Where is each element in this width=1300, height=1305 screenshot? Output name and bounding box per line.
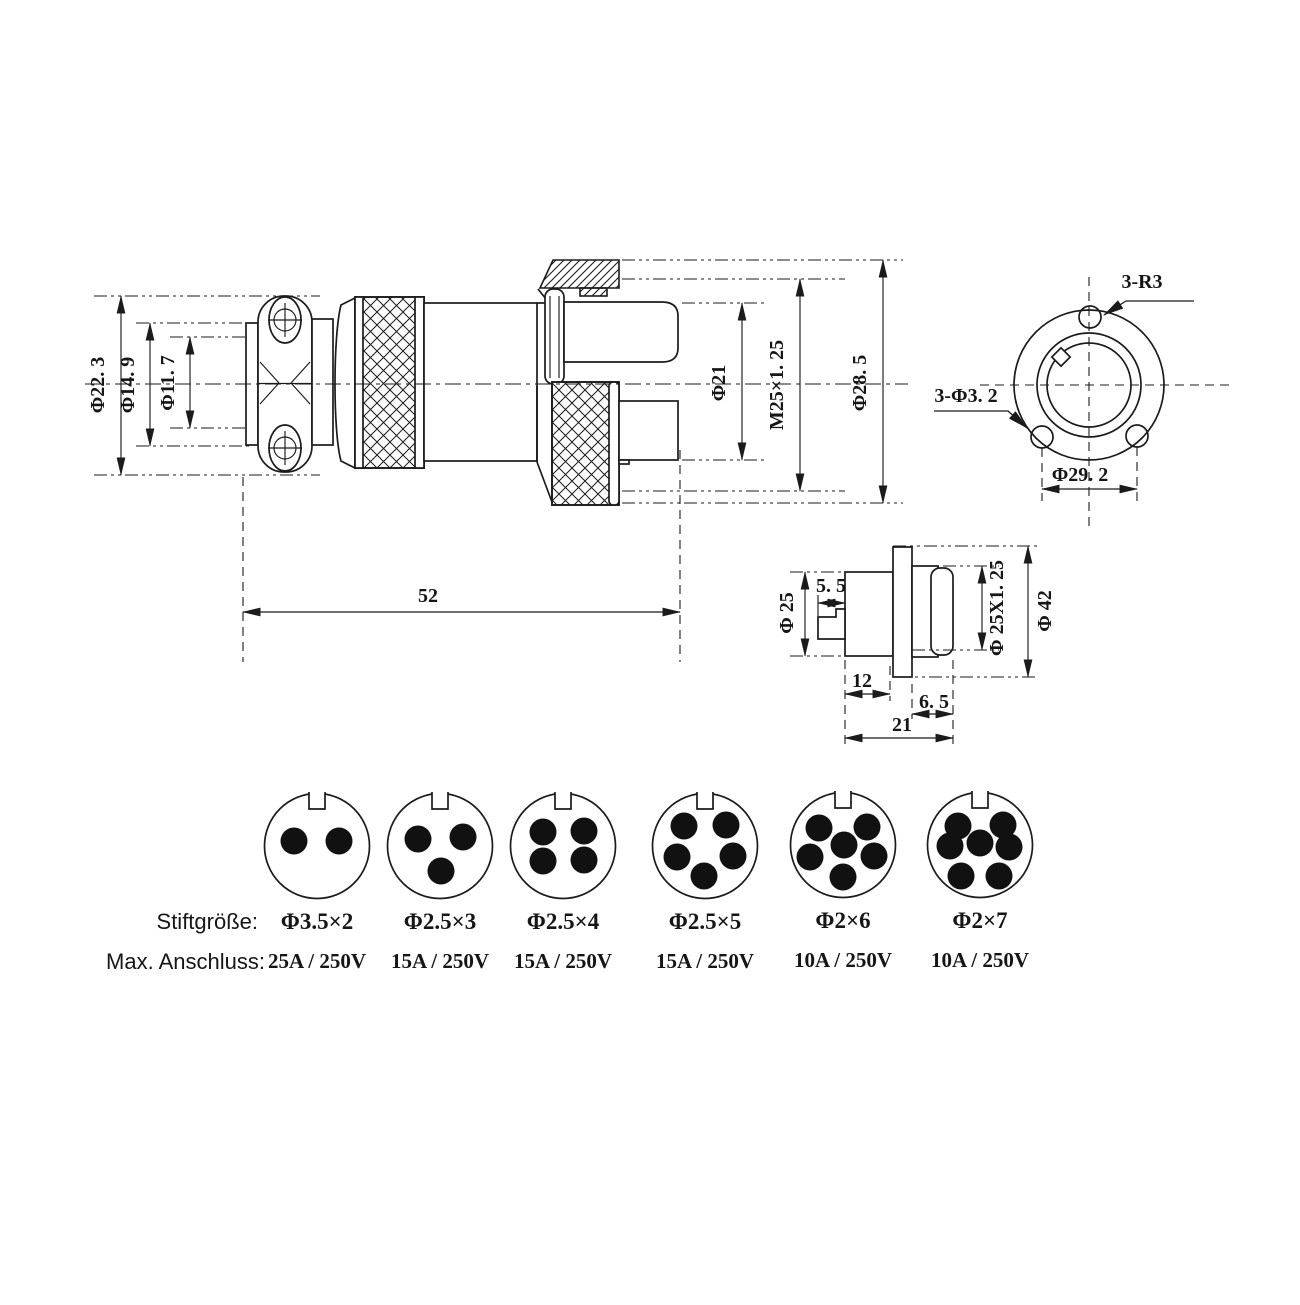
socket-front-cylinder xyxy=(845,572,893,656)
dim-nut-diameter: Φ28. 5 xyxy=(849,355,871,412)
dim-inner-diameter: Φ11. 7 xyxy=(157,355,179,410)
technical-drawing-canvas: Φ22. 3 Φ14. 9 Φ11. 7 Φ21 M25×1. 25 Φ28. … xyxy=(0,0,1300,1300)
pin-size-label: Φ2.5×3 xyxy=(404,909,476,934)
row-label-max-rating: Max. Anschluss: xyxy=(106,949,265,974)
pin-size-label: Φ3.5×2 xyxy=(281,909,353,934)
dim-total-length: 21 xyxy=(892,714,912,736)
dim-outer-diameter: Φ22. 3 xyxy=(87,357,109,414)
dim-mid-diameter: Φ14. 9 xyxy=(117,357,139,414)
pin-size-label: Φ2.5×5 xyxy=(669,909,741,934)
plug-body xyxy=(424,303,537,461)
dim-front-length: 12 xyxy=(852,670,872,692)
pin-view-2pin: Φ3.5×2 25A / 250V xyxy=(265,792,370,973)
label-r3-notches: 3-R3 xyxy=(1121,271,1162,293)
pin-size-label: Φ2×7 xyxy=(952,908,1007,933)
dim-rear-length: 6. 5 xyxy=(919,691,949,713)
connector-datasheet: Φ22. 3 Φ14. 9 Φ11. 7 Φ21 M25×1. 25 Φ28. … xyxy=(0,0,1300,1300)
keyway-notch xyxy=(1052,348,1070,366)
label-mounting-holes: 3-Φ3. 2 xyxy=(934,385,997,407)
panel-section-hatch xyxy=(540,260,619,288)
dim-body-diameter: Φ21 xyxy=(708,365,730,402)
rating-label: 15A / 250V xyxy=(656,949,754,973)
socket-flange xyxy=(893,547,912,677)
dim-flange-diameter: Φ 42 xyxy=(1034,590,1056,632)
dim-bolt-circle: Φ29. 2 xyxy=(1052,464,1109,486)
dim-overall-length: 52 xyxy=(418,585,438,607)
bell-cone xyxy=(335,298,355,468)
socket-rear-cap xyxy=(931,568,953,655)
rating-label: 10A / 250V xyxy=(794,948,892,972)
socket-rear-stub xyxy=(619,401,678,460)
knurled-nut-plug xyxy=(355,297,424,468)
pin-configuration-table: Stiftgröße: Max. Anschluss: Φ3.5×2 25A /… xyxy=(106,791,1032,974)
mounting-flange-plate xyxy=(545,289,564,384)
dim-panel-thread: Φ 25X1. 25 xyxy=(986,560,1008,656)
pin-size-label: Φ2×6 xyxy=(815,908,870,933)
rating-label: 15A / 250V xyxy=(391,949,489,973)
pin-view-5pin: Φ2.5×5 15A / 250V xyxy=(653,792,758,973)
dim-front-diameter: Φ 25 xyxy=(776,592,798,634)
rating-label: 10A / 250V xyxy=(931,948,1029,972)
panel-socket-side-view: Φ 25 5. 5 Φ 25X1. 25 Φ 42 12 6. 5 21 xyxy=(776,546,1056,744)
pin-size-label: Φ2.5×4 xyxy=(527,909,600,934)
pin-view-3pin: Φ2.5×3 15A / 250V xyxy=(388,792,493,973)
dim-tab-width: 5. 5 xyxy=(816,575,846,597)
socket-key-tab xyxy=(818,609,845,639)
dim-thread-spec: M25×1. 25 xyxy=(766,340,788,430)
flange-front-view: 3-R3 3-Φ3. 2 Φ29. 2 xyxy=(934,271,1233,527)
row-label-pin-size: Stiftgröße: xyxy=(157,909,258,934)
rating-label: 25A / 250V xyxy=(268,949,366,973)
pin-view-4pin: Φ2.5×4 15A / 250V xyxy=(511,792,616,973)
pin-view-6pin: Φ2×6 10A / 250V xyxy=(791,791,896,972)
socket-body xyxy=(564,302,678,362)
spacer-ring xyxy=(312,319,333,445)
rating-label: 15A / 250V xyxy=(514,949,612,973)
pin-view-7pin: Φ2×7 10A / 250V xyxy=(928,791,1033,972)
